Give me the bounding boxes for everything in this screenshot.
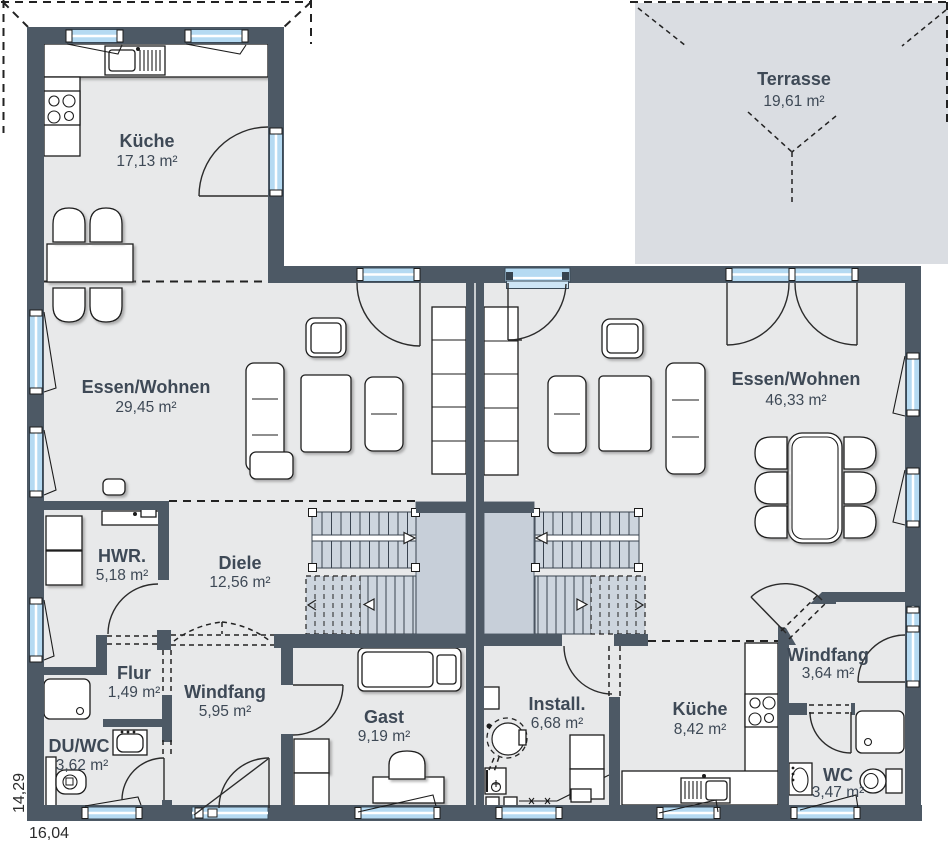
svg-text:46,33 m²: 46,33 m² (765, 392, 826, 409)
svg-text:Windfang: Windfang (787, 645, 869, 665)
svg-text:3,62 m²: 3,62 m² (56, 757, 109, 774)
svg-text:Essen/Wohnen: Essen/Wohnen (82, 377, 211, 397)
svg-text:3,47 m²: 3,47 m² (812, 784, 865, 801)
svg-text:3,64 m²: 3,64 m² (802, 665, 855, 682)
svg-text:Küche: Küche (672, 699, 727, 719)
svg-text:16,04: 16,04 (29, 825, 69, 842)
svg-text:12,56 m²: 12,56 m² (209, 574, 270, 591)
svg-text:1,49 m²: 1,49 m² (108, 684, 161, 701)
svg-text:Küche: Küche (119, 131, 174, 151)
svg-text:DU/WC: DU/WC (49, 736, 110, 756)
svg-text:6,68 m²: 6,68 m² (531, 715, 584, 732)
svg-text:Diele: Diele (218, 553, 261, 573)
svg-text:Terrasse: Terrasse (757, 69, 831, 89)
svg-text:19,61 m²: 19,61 m² (763, 93, 824, 110)
svg-text:5,18 m²: 5,18 m² (96, 567, 149, 584)
svg-text:Windfang: Windfang (184, 682, 266, 702)
svg-text:29,45 m²: 29,45 m² (115, 399, 176, 416)
svg-text:9,19 m²: 9,19 m² (358, 728, 411, 745)
svg-text:Flur: Flur (117, 663, 151, 683)
svg-text:5,95 m²: 5,95 m² (199, 703, 252, 720)
svg-text:HWR.: HWR. (98, 546, 146, 566)
svg-text:8,42 m²: 8,42 m² (674, 721, 727, 738)
svg-text:14,29: 14,29 (11, 773, 28, 813)
svg-text:Gast: Gast (364, 707, 404, 727)
svg-text:Install.: Install. (528, 694, 585, 714)
svg-text:Essen/Wohnen: Essen/Wohnen (732, 369, 861, 389)
svg-text:WC: WC (823, 765, 853, 785)
svg-text:17,13 m²: 17,13 m² (116, 153, 177, 170)
